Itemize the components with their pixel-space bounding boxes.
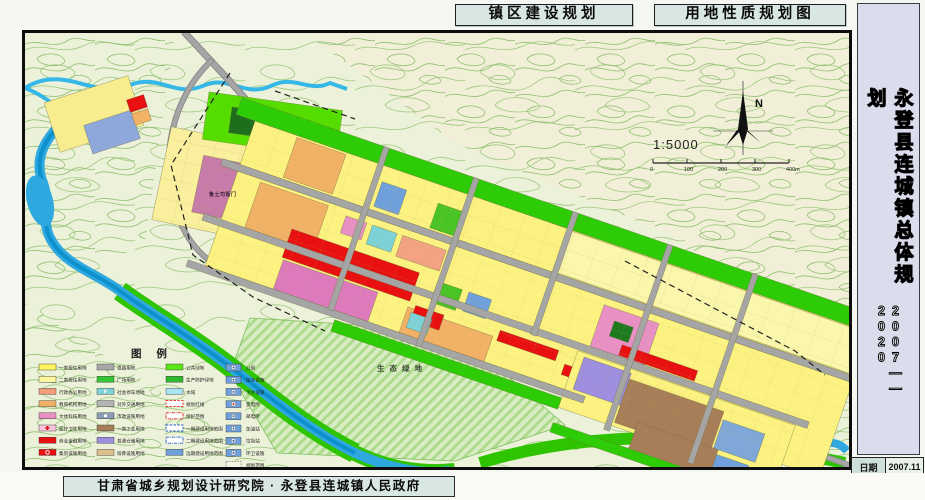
legend-item: 环卫设施 xyxy=(226,449,265,456)
legend-item-label: 商业金融用地 xyxy=(59,438,87,445)
scale-tick-label: 300 xyxy=(752,167,761,173)
plan-title-vertical: 永登县连城镇总体规划 xyxy=(862,88,916,300)
scale-tick-label: 200 xyxy=(718,167,727,173)
legend-item-label: 殡葬设施用地 xyxy=(117,450,145,457)
legend-item-label: 变电所 xyxy=(246,401,260,408)
scale-tick-label: 0 xyxy=(650,167,653,173)
planning-map-svg: N 1:5000 0100200300400m 图 例一类居住用地二类居住用地行… xyxy=(25,33,849,467)
scale-tick-label: 400m xyxy=(786,167,800,173)
sidebar-title-panel: 永登县连城镇总体规划 2007——2020 xyxy=(857,3,920,455)
legend-item: 一期建设用地范围 xyxy=(166,425,223,432)
legend-item-label: 二期建设用地范围 xyxy=(186,438,223,445)
legend-item: 水域 xyxy=(166,388,196,394)
legend-item-label: 远期建设用地范围 xyxy=(186,450,223,457)
page: { "titles": { "left": "镇区建设规划", "right":… xyxy=(0,0,925,500)
map-area[interactable]: N 1:5000 0100200300400m 图 例一类居住用地二类居住用地行… xyxy=(22,30,852,470)
legend-item: P社会停车场地 xyxy=(97,388,145,395)
legend-item-label: 道路用地 xyxy=(117,364,136,371)
title-landuse-plan: 用地性质规划图 xyxy=(654,4,846,26)
legend-title: 图 例 xyxy=(131,347,173,360)
legend-item-label: 给水设施 xyxy=(246,377,265,384)
legend-item-label: 生产防护绿地 xyxy=(186,377,214,384)
legend-item: 规划范围 xyxy=(226,462,265,467)
legend-item-label: 规划范围 xyxy=(246,462,265,467)
map-label: 鲁土司衙门 xyxy=(209,191,237,198)
legend-item-label: 教育机构用地 xyxy=(59,401,87,408)
legend-item-label: 一期建设用地范围 xyxy=(186,425,223,432)
legend-item-label: 行政办公用地 xyxy=(59,389,87,396)
legend-item: 污水设施 xyxy=(226,388,265,395)
legend-item-label: 水域 xyxy=(186,389,196,395)
legend-item-label: 保护范围 xyxy=(186,413,205,420)
legend-item: 给水设施 xyxy=(226,376,265,383)
scale-tick-label: 100 xyxy=(684,167,693,173)
legend-item-label: 邮电所 xyxy=(246,413,260,420)
legend-item-label: 加油站 xyxy=(246,425,260,432)
scale-text: 1:5000 xyxy=(653,137,699,152)
legend-item-label: 医疗卫生用地 xyxy=(59,425,87,432)
legend-item-label: 垃圾站 xyxy=(246,438,260,445)
legend-item-label: 二类居住用地 xyxy=(59,377,87,384)
legend-item: 二期建设用地范围 xyxy=(166,437,223,444)
legend-item-label: 普通仓储用地 xyxy=(117,438,145,445)
title-construction-plan: 镇区建设规划 xyxy=(455,4,633,26)
legend-item-label: 对外交通用地 xyxy=(117,401,145,408)
legend-item-label: 一类居住用地 xyxy=(59,364,87,371)
north-label: N xyxy=(755,98,763,110)
legend-item-label: 公共绿地 xyxy=(186,364,205,371)
legend-item-label: 文体科技用地 xyxy=(59,413,87,420)
legend-item-label: 集贸设施用地 xyxy=(59,450,87,457)
legend-item-label: 污水设施 xyxy=(246,389,265,396)
map-label: 生态绿地 xyxy=(377,363,427,373)
legend-item-label: 规划红线 xyxy=(186,401,205,408)
plan-years-vertical: 2007——2020 xyxy=(875,304,903,454)
legend-item-label: 广场用地 xyxy=(117,377,136,384)
legend-item-label: 环卫设施 xyxy=(246,450,265,457)
legend-item-label: 社会停车场地 xyxy=(117,389,145,396)
credit-box: 甘肃省城乡规划设计研究院 · 永登县连城镇人民政府 xyxy=(63,476,455,497)
legend-item-label: 市政设施用地 xyxy=(117,413,145,420)
legend-item-label: 一类工业用地 xyxy=(117,425,145,432)
legend-item: 公厕 xyxy=(226,364,256,371)
